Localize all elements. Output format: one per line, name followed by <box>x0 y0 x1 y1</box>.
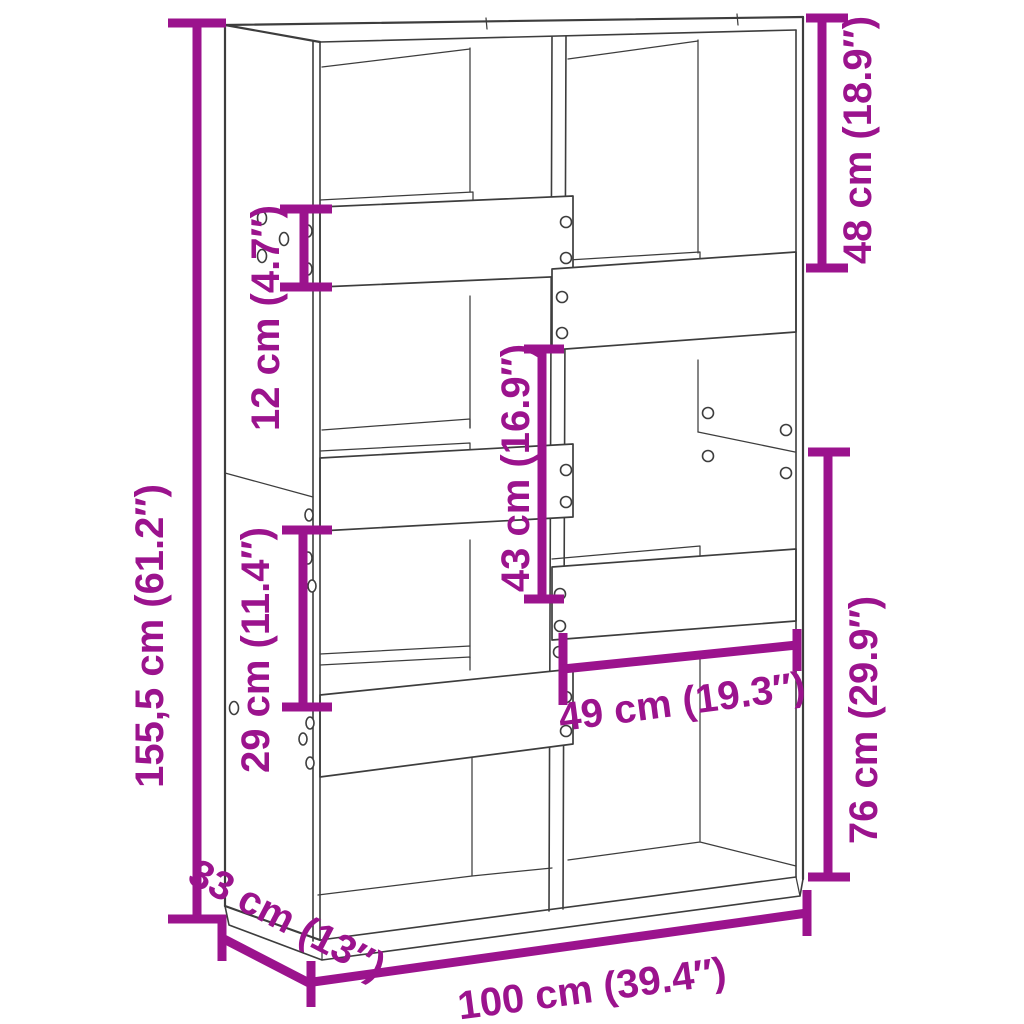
dimension-depth: 33 cm (13″) <box>182 851 393 1007</box>
dimension-lower-right-section-height: 76 cm (29.9″) <box>808 452 886 877</box>
dimension-label-right-compartment-width: 49 cm (19.3″) <box>556 664 808 740</box>
diagram-canvas: 155,5 cm (61.2″) 12 cm (4.7″) 48 cm (18.… <box>0 0 1024 1024</box>
dimension-label-total-height: 155,5 cm (61.2″) <box>128 484 172 788</box>
dimension-total-height: 155,5 cm (61.2″) <box>128 23 226 919</box>
dimension-right-compartment-width: 49 cm (19.3″) <box>556 629 808 740</box>
dimension-label-top-right-compartment-height: 48 cm (18.9″) <box>836 16 880 264</box>
dimension-label-lower-right-section-height: 76 cm (29.9″) <box>842 596 886 844</box>
dimension-top-right-compartment-height: 48 cm (18.9″) <box>806 16 880 268</box>
dimension-left-compartment-height: 29 cm (11.4″) <box>234 527 332 773</box>
dimension-label-shelf-band-height: 12 cm (4.7″) <box>244 205 288 431</box>
dimension-label-left-compartment-height: 29 cm (11.4″) <box>234 527 278 773</box>
dimension-label-middle-compartment-height: 43 cm (16.9″) <box>494 344 538 592</box>
dimension-diagram: 155,5 cm (61.2″) 12 cm (4.7″) 48 cm (18.… <box>0 0 1024 1024</box>
